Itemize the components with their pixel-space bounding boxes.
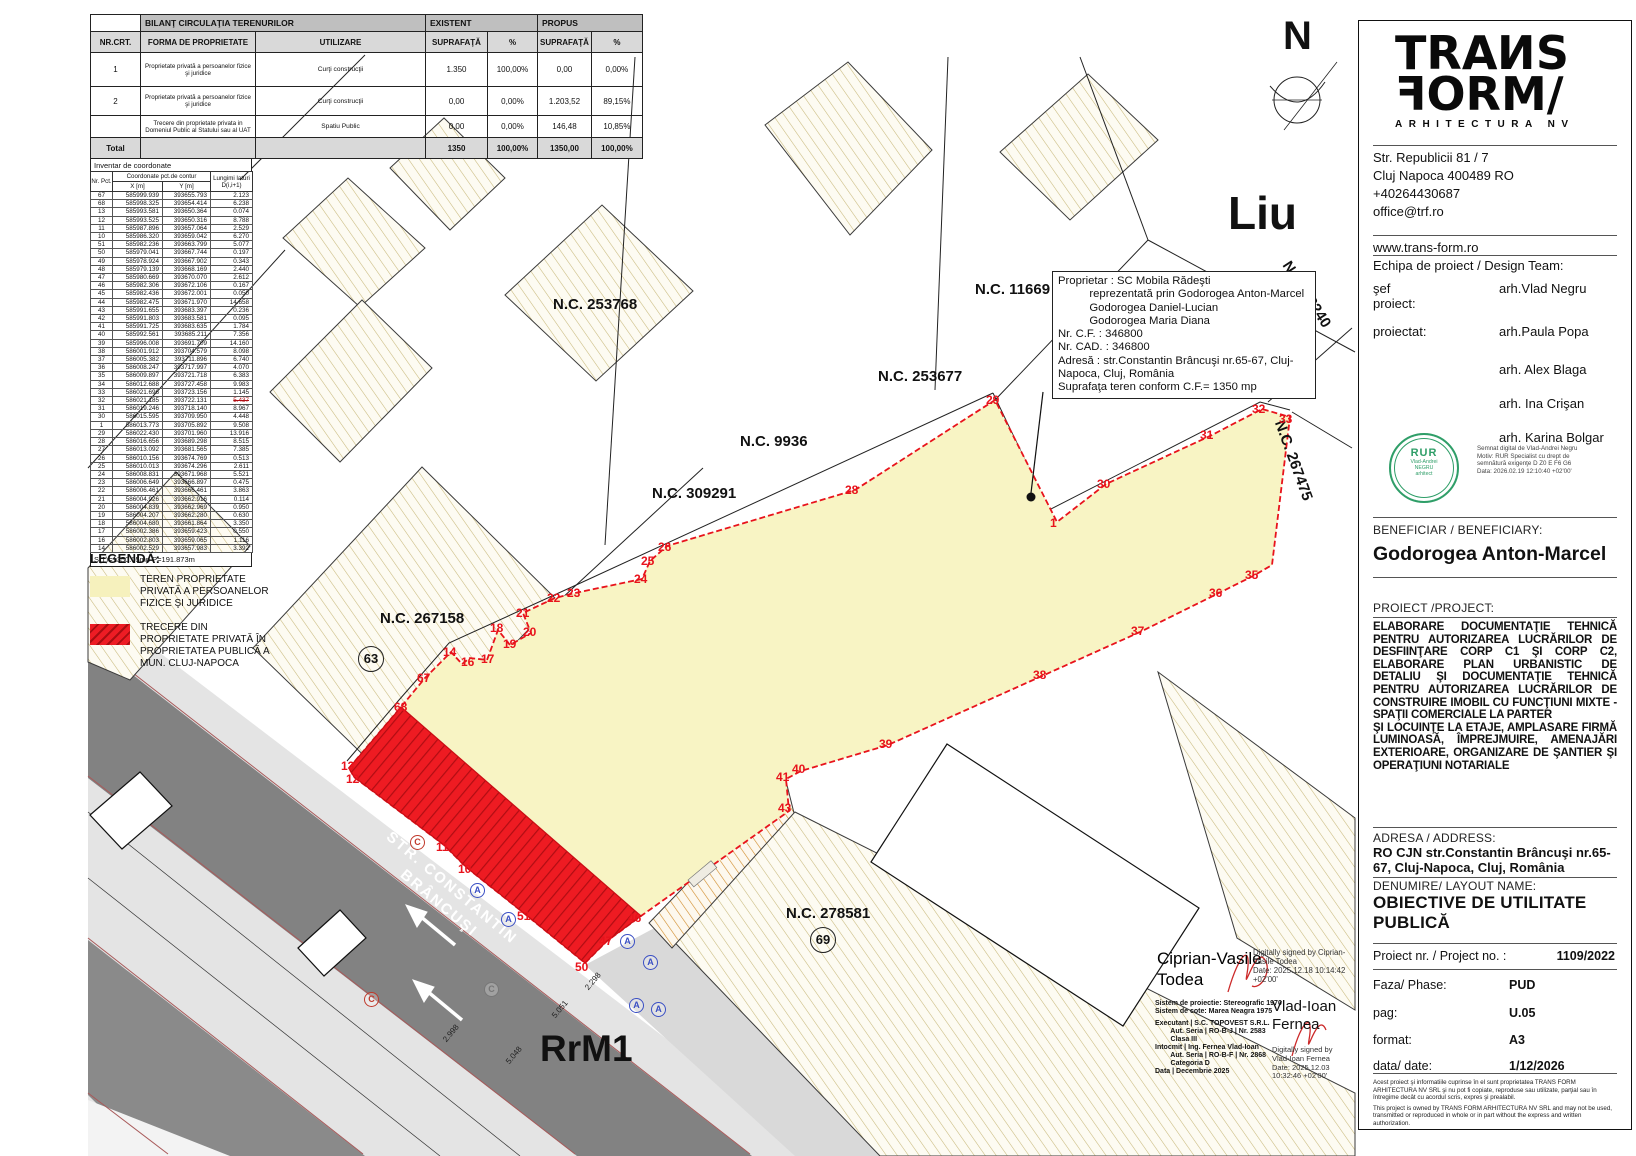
coord-cell: 393704.579 [163, 347, 211, 355]
design-team-label: Echipa de proiect / Design Team: [1373, 258, 1564, 273]
coord-cell: 393650.316 [163, 216, 211, 224]
text-line: This project is owned by TRANS FORM ARHI… [1373, 1105, 1617, 1128]
table-cell: Total [91, 138, 141, 159]
col-header: FORMA DE PROPRIETATE [141, 32, 256, 53]
coord-cell: 393661.864 [163, 520, 211, 528]
table-cell: 1 [91, 53, 141, 87]
text-line: Semnat digital de Vlad-Andrei Negru [1477, 445, 1622, 453]
coord-cell: 46 [91, 282, 113, 290]
field-row: Proiect nr. / Project no. :1109/2022 [1373, 949, 1617, 963]
coord-cell: 0.114 [211, 495, 253, 503]
coord-cell: 3.350 [211, 520, 253, 528]
stamp-small-text: Vlad-AndreiNEGRUarhitect [1391, 459, 1457, 477]
field-label: pag: [1373, 1006, 1397, 1020]
stamp-signature-note: Semnat digital de Vlad-Andrei NegruMotiv… [1477, 445, 1622, 475]
sheet: { "colors":{"accent_red":"#ed1c24","parc… [0, 0, 1636, 1156]
team-name: arh. Alex Blaga [1499, 362, 1586, 377]
coord-cell: 586004.926 [113, 495, 163, 503]
table-cell: 0,00 [426, 116, 488, 138]
coord-cell: 0.630 [211, 511, 253, 519]
coord-cell: 27 [91, 446, 113, 454]
coord-row: 36586008.247393717.9974.070 [91, 364, 253, 372]
coord-cell: 585979.041 [113, 249, 163, 257]
beneficiary-name: Godorogea Anton-Marcel [1373, 543, 1606, 566]
coord-cell: 43 [91, 306, 113, 314]
coord-cell: 585987.896 [113, 224, 163, 232]
coord-cell: 586013.773 [113, 421, 163, 429]
coord-row: 45585982.436393672.0010.050 [91, 290, 253, 298]
coord-cell: 586001.912 [113, 347, 163, 355]
coord-cell: 586002.803 [113, 536, 163, 544]
table-cell: 1350 [426, 138, 488, 159]
team-role: şef proiect: [1373, 281, 1416, 311]
coord-row: 46585982.306393672.1060.167 [91, 282, 253, 290]
coord-cell: 14.160 [211, 339, 253, 347]
coord-cell: 393662.969 [163, 503, 211, 511]
coord-cell: 20 [91, 503, 113, 511]
layout-name-value: OBIECTIVE DE UTILITATE PUBLICĂ [1373, 893, 1617, 933]
text-line: Data | Decembrie 2025 [1155, 1068, 1270, 1076]
field-value: 1109/2022 [1557, 949, 1615, 963]
coord-cell: 34 [91, 380, 113, 388]
coord-row: 18586004.680393661.8643.350 [91, 520, 253, 528]
logo-line2: FORM/ [1395, 74, 1575, 115]
text-line: Aut. Seria | RO-B-F | Nr. 2868 [1155, 1052, 1270, 1060]
coord-col-x: X [m] [113, 182, 163, 192]
coord-cell: 393674.296 [163, 462, 211, 470]
stamp-rur-text: RUR [1391, 447, 1457, 459]
coord-cell: 586008.831 [113, 470, 163, 478]
address-label: ADRESA / ADDRESS: [1373, 831, 1496, 845]
coord-cell: 585992.561 [113, 331, 163, 339]
coord-cell: 1.116 [211, 536, 253, 544]
coord-cell: 393674.769 [163, 454, 211, 462]
table-row: 1Proprietate privată a persoanelor fizic… [91, 53, 643, 87]
coord-cell: 35 [91, 372, 113, 380]
project-description: ELABORARE DOCUMENTAŢIE TEHNICĂ PENTRU AU… [1373, 621, 1617, 772]
table-cell: 100,00% [488, 138, 538, 159]
website-link[interactable]: www.trans-form.ro [1373, 240, 1478, 255]
coord-col-nr: Nr. Pct. [91, 172, 113, 192]
field-label: data/ date: [1373, 1059, 1432, 1073]
text-line: Proprietar : SC Mobila Rădeşti [1058, 275, 1310, 288]
coord-cell: 393721.718 [163, 372, 211, 380]
coord-cell: 41 [91, 323, 113, 331]
coord-cell: 5.437 [211, 397, 253, 405]
col-header: % [591, 32, 642, 53]
text-line: Categoria D [1155, 1060, 1270, 1068]
coord-cell: 0.050 [211, 290, 253, 298]
coord-cell: 585978.924 [113, 257, 163, 265]
coord-cell: 7.385 [211, 446, 253, 454]
coord-cell: 33 [91, 388, 113, 396]
coord-row: 68585998.325393654.4146.238 [91, 200, 253, 208]
coord-row: 42585991.803393683.5810.095 [91, 315, 253, 323]
coord-cell: 51 [91, 241, 113, 249]
col-header: SUPRAFAŢĂ [426, 32, 488, 53]
coord-cell: 30 [91, 413, 113, 421]
coordinate-inventory: Inventar de coordonate Nr. Pct. Coordona… [90, 158, 252, 567]
owner-info-box: Proprietar : SC Mobila Rădeşti reprezent… [1052, 271, 1316, 399]
coord-cell: 2.529 [211, 224, 253, 232]
coord-cell: 1 [91, 421, 113, 429]
coord-cell: 67 [91, 192, 113, 200]
coord-row: 38586001.912393704.5798.098 [91, 347, 253, 355]
table-cell [141, 138, 256, 159]
survey-systems: Sistem de proiectie: Stereografic 1970Si… [1155, 1000, 1282, 1016]
coord-row: 50585979.041393667.7440.197 [91, 249, 253, 257]
coord-cell: 585979.139 [113, 265, 163, 273]
table-cell: Proprietate privată a persoanelor fizice… [141, 53, 256, 87]
coord-cell: 586015.595 [113, 413, 163, 421]
text-line: Intocmit | Ing. Fernea Vlad-Ioan [1155, 1044, 1270, 1052]
contact-info: Str. Republicii 81 / 7Cluj Napoca 400489… [1373, 149, 1514, 221]
coord-row: 29586022.430393701.96013.916 [91, 429, 253, 437]
field-row: format:A3 [1373, 1033, 1617, 1047]
table-cell: 1350,00 [538, 138, 592, 159]
coord-cell: 16 [91, 536, 113, 544]
logo-letter: / [1547, 67, 1564, 121]
coord-row: 30586015.595393709.9504.448 [91, 413, 253, 421]
coord-cell: 586016.656 [113, 438, 163, 446]
table-cell [91, 116, 141, 138]
engineer-name: Vlad-IoanFernea [1272, 998, 1336, 1034]
table-row: Total1350100,00%1350,00100,00% [91, 138, 643, 159]
text-line: Motiv: RUR Specialist cu drept de [1477, 453, 1622, 461]
coord-cell: 44 [91, 298, 113, 306]
coord-cell: 68 [91, 200, 113, 208]
coord-cell: 586009.897 [113, 372, 163, 380]
coord-row: 33586021.696393723.1561.145 [91, 388, 253, 396]
coord-row: 28586016.656393689.2988.515 [91, 438, 253, 446]
table-cell: 1.203,52 [538, 87, 592, 116]
coord-cell: 50 [91, 249, 113, 257]
coord-cell: 586021.185 [113, 397, 163, 405]
field-row: Faza/ Phase:PUD [1373, 978, 1617, 992]
coord-cell: 393727.458 [163, 380, 211, 388]
coord-cell: 393659.423 [163, 528, 211, 536]
coord-cell: 19 [91, 511, 113, 519]
coord-cell: 28 [91, 438, 113, 446]
coord-row: 40585992.561393685.2117.356 [91, 331, 253, 339]
coord-row: 37586005.382393711.8966.740 [91, 356, 253, 364]
text-line: Sistem de proiectie: Stereografic 1970 [1155, 1000, 1282, 1008]
legend-item-label: TRECERE DIN PROPRIETATE PRIVATĂ ÎN PROPR… [140, 622, 270, 670]
coord-row: 13585993.581393650.3640.074 [91, 208, 253, 216]
project-paragraph: ŞI LOCUINŢE LA ETAJE, AMPLASARE FIRMĂ LU… [1373, 722, 1617, 772]
coord-cell: 2.612 [211, 274, 253, 282]
coord-cell: 393685.211 [163, 331, 211, 339]
coord-table-title: Inventar de coordonate [90, 158, 252, 171]
coord-cell: 586004.207 [113, 511, 163, 519]
coord-cell: 586006.461 [113, 487, 163, 495]
coord-cell: 585991.655 [113, 306, 163, 314]
coord-cell: 31 [91, 405, 113, 413]
coord-cell: 393668.169 [163, 265, 211, 273]
coord-row: 49585978.924393667.9020.343 [91, 257, 253, 265]
text-line: Clasa III [1155, 1036, 1270, 1044]
coord-cell: 585986.320 [113, 233, 163, 241]
coord-cell: 6.383 [211, 372, 253, 380]
surveyor-name: Ciprian-VasileTodea [1157, 948, 1262, 990]
coord-cell: 585993.581 [113, 208, 163, 216]
coord-cell: 393659.065 [163, 536, 211, 544]
text-line: +40264430687 [1373, 185, 1514, 203]
coord-cell: 37 [91, 356, 113, 364]
rur-stamp: RUR Vlad-AndreiNEGRUarhitect [1389, 433, 1459, 503]
coord-row: 35586009.897393721.7186.383 [91, 372, 253, 380]
coord-cell: 1.145 [211, 388, 253, 396]
text-line: arhitect [1391, 471, 1457, 477]
coord-cell: 13 [91, 208, 113, 216]
text-line: Str. Republicii 81 / 7 [1373, 149, 1514, 167]
coord-cell: 585982.436 [113, 290, 163, 298]
coord-cell: 586022.430 [113, 429, 163, 437]
coord-cell: 40 [91, 331, 113, 339]
coord-cell: 12 [91, 216, 113, 224]
coord-cell: 585998.325 [113, 200, 163, 208]
legend: LEGENDĂ: TEREN PROPRIETATE PRIVATĂ A PER… [90, 551, 270, 682]
team-name: arh.Vlad Negru [1499, 281, 1586, 296]
coord-cell: 0.513 [211, 454, 253, 462]
coord-cell: 0.074 [211, 208, 253, 216]
coord-row: 12585993.525393650.3168.788 [91, 216, 253, 224]
bilant-existent: EXISTENT [426, 15, 538, 32]
coord-cell: 42 [91, 315, 113, 323]
coord-cell: 7.356 [211, 331, 253, 339]
coord-cell: 585993.525 [113, 216, 163, 224]
coord-cell: 393655.793 [163, 192, 211, 200]
coord-cell: 393689.298 [163, 438, 211, 446]
coord-cell: 393705.892 [163, 421, 211, 429]
coord-row: 26586010.156393674.7690.513 [91, 454, 253, 462]
field-label: Faza/ Phase: [1373, 978, 1447, 992]
coord-row: 48585979.139393668.1692.440 [91, 265, 253, 273]
coord-cell: 11 [91, 224, 113, 232]
col-header: UTILIZARE [256, 32, 426, 53]
coord-cell: 393683.635 [163, 323, 211, 331]
coord-cell: 0.343 [211, 257, 253, 265]
coord-cell: 585980.669 [113, 274, 163, 282]
coord-cell: 0.095 [211, 315, 253, 323]
north-compass [1270, 62, 1337, 130]
coord-cell: 393672.106 [163, 282, 211, 290]
coord-cell: 585996.008 [113, 339, 163, 347]
legend-item-label: TEREN PROPRIETATE PRIVATĂ A PERSOANELOR … [140, 574, 270, 610]
table-cell: 2 [91, 87, 141, 116]
coord-cell: 4.070 [211, 364, 253, 372]
coord-cell: 2.440 [211, 265, 253, 273]
coord-row: 23586006.649393666.8970.475 [91, 479, 253, 487]
coord-cell: 393681.565 [163, 446, 211, 454]
coord-cell: 393662.916 [163, 495, 211, 503]
title-block: TRANS FORM/ ARHITECTURA NV Str. Republic… [1358, 20, 1632, 1130]
coord-cell: 586004.680 [113, 520, 163, 528]
table-cell: 146,48 [538, 116, 592, 138]
coord-cell: 0.197 [211, 249, 253, 257]
legend-item: TEREN PROPRIETATE PRIVATĂ A PERSOANELOR … [90, 574, 270, 610]
coord-cell: 393717.997 [163, 364, 211, 372]
table-row: 2Proprietate privată a persoanelor fizic… [91, 87, 643, 116]
coord-cell: 585982.306 [113, 282, 163, 290]
digital-signature-note: Digitally signed byVlad-Ioan FerneaDate:… [1272, 1046, 1332, 1081]
text-line: Ciprian-Vasile [1157, 948, 1262, 969]
project-label: PROIECT /PROJECT: [1373, 601, 1494, 615]
field-row: data/ date:1/12/2026 [1373, 1059, 1617, 1073]
coord-cell: 6.238 [211, 200, 253, 208]
coord-cell: 25 [91, 462, 113, 470]
legend-swatch-red-hatch [90, 624, 130, 645]
coord-cell: 586002.386 [113, 528, 163, 536]
table-cell: 0,00 [538, 53, 592, 87]
coord-cell: 48 [91, 265, 113, 273]
text-line: Godorogea Maria Diana [1058, 315, 1310, 328]
coord-row: 39585996.008393691.70914.160 [91, 339, 253, 347]
text-line: Executant | S.C. TOPOVEST S.R.L. [1155, 1020, 1270, 1028]
coord-cell: 8.788 [211, 216, 253, 224]
logo-letter: N [1497, 33, 1536, 74]
table-row: Trecere din proprietate privata in Domen… [91, 116, 643, 138]
text-line: Adresă : str.Constantin Brâncuşi nr.65-6… [1058, 355, 1310, 368]
table-cell: Trecere din proprietate privata in Domen… [141, 116, 256, 138]
table-cell: Spatiu Public [256, 116, 426, 138]
coord-cell: 22 [91, 487, 113, 495]
coord-cell: 6.740 [211, 356, 253, 364]
coord-cell: 23 [91, 479, 113, 487]
coord-cell: 586012.688 [113, 380, 163, 388]
text-line: Godorogea Daniel-Lucian [1058, 302, 1310, 315]
coord-cell: 393654.414 [163, 200, 211, 208]
coord-row: 43585991.655393683.3970.236 [91, 306, 253, 314]
coord-row: 16586002.803393659.0651.116 [91, 536, 253, 544]
coord-cell: 38 [91, 347, 113, 355]
coord-cell: 586008.247 [113, 364, 163, 372]
coord-cell: 0.950 [211, 503, 253, 511]
table-cell: 0,00% [488, 87, 538, 116]
coord-row: 31586019.246393718.1408.967 [91, 405, 253, 413]
coord-row: 24586008.831393671.9685.521 [91, 470, 253, 478]
table-cell: 100,00% [488, 53, 538, 87]
coord-cell: 393723.156 [163, 388, 211, 396]
coord-cell: 393670.070 [163, 274, 211, 282]
coord-col-coords: Coordonate pct.de contur [113, 172, 211, 182]
logo-letter: O [1426, 67, 1465, 121]
team-name: arh. Ina Crişan [1499, 396, 1584, 411]
coord-row: 67585999.939393655.7932.123 [91, 192, 253, 200]
coord-cell: 32 [91, 397, 113, 405]
coord-row: 10585986.320393659.0426.270 [91, 233, 253, 241]
coord-cell: 29 [91, 429, 113, 437]
table-cell: Curţi construcţii [256, 87, 426, 116]
coord-cell: 393650.364 [163, 208, 211, 216]
text-line: semnătură exigenţe D Z0 E F6 G6 [1477, 460, 1622, 468]
coord-cell: 585991.803 [113, 315, 163, 323]
coord-cell: 9.508 [211, 421, 253, 429]
coord-cell: 4.448 [211, 413, 253, 421]
table-cell: 0,00 [426, 87, 488, 116]
legend-title: LEGENDĂ: [90, 551, 270, 566]
coord-cell: 393659.042 [163, 233, 211, 241]
coord-cell: 26 [91, 454, 113, 462]
coord-row: 1586013.773393705.8929.508 [91, 421, 253, 429]
coord-cell: 393672.001 [163, 290, 211, 298]
coord-cell: 47 [91, 274, 113, 282]
text-line: Date: 2025.12.18 10:14:42 [1253, 966, 1345, 975]
logo-letter: R [1466, 67, 1501, 121]
coord-cell: 393663.799 [163, 241, 211, 249]
coord-cell: 393718.140 [163, 405, 211, 413]
text-line: Vlad-Ioan [1272, 998, 1336, 1016]
coord-cell: 393691.709 [163, 339, 211, 347]
table-cell: 100,00% [591, 138, 642, 159]
coord-cell: 9.983 [211, 380, 253, 388]
table-cell: 0,00% [488, 116, 538, 138]
digital-signature-note: Digitally signed by Ciprian-Vasile Todea… [1253, 948, 1345, 984]
coord-cell: 585982.236 [113, 241, 163, 249]
coord-cell: 8.098 [211, 347, 253, 355]
coord-cell: 586010.156 [113, 454, 163, 462]
coord-cell: 49 [91, 257, 113, 265]
bilant-title: BILANŢ CIRCULAŢIA TERENURILOR [141, 15, 426, 32]
text-line: Digitally signed by Ciprian- [1253, 948, 1345, 957]
coord-cell: 393701.960 [163, 429, 211, 437]
coord-cell: 393666.897 [163, 479, 211, 487]
text-line: office@trf.ro [1373, 203, 1514, 221]
coord-cell: 13.916 [211, 429, 253, 437]
coord-cell: 10 [91, 233, 113, 241]
project-paragraph: ELABORARE DOCUMENTAŢIE TEHNICĂ PENTRU AU… [1373, 621, 1617, 722]
text-line: Vasile Todea [1253, 957, 1345, 966]
coord-row: 19586004.207393662.2800.630 [91, 511, 253, 519]
coord-cell: 393709.950 [163, 413, 211, 421]
coord-row: 27586013.092393681.5657.385 [91, 446, 253, 454]
coord-row: 34586012.688393727.4589.983 [91, 380, 253, 388]
coord-cell: 8.515 [211, 438, 253, 446]
text-line: 10:32:46 +02'00' [1272, 1072, 1332, 1081]
coord-cell: 0.550 [211, 528, 253, 536]
coord-col-len: Lungimi laturi D(i,i+1) [211, 172, 253, 192]
coord-cell: 0.236 [211, 306, 253, 314]
text-line: Todea [1157, 969, 1262, 990]
text-line: Napoca, Cluj, România [1058, 368, 1310, 381]
text-line: Sistem de cote: Marea Neagra 1975 [1155, 1008, 1282, 1016]
text-line: Data: 2026.02.19 12:10:40 +02'00' [1477, 468, 1622, 476]
layout-name-label: DENUMIRE/ LAYOUT NAME: [1373, 879, 1536, 893]
team-role: proiectat: [1373, 324, 1426, 339]
table-cell: 0,00% [591, 53, 642, 87]
coord-cell: 586005.382 [113, 356, 163, 364]
text-line: Cluj Napoca 400489 RO [1373, 167, 1514, 185]
text-line: Acest proiect şi informatiile cuprinse î… [1373, 1079, 1617, 1102]
coord-cell: 585982.475 [113, 298, 163, 306]
text-line: Nr. C.F. : 346800 [1058, 328, 1310, 341]
text-line: Suprafaţa teren conform C.F.= 1350 mp [1058, 381, 1310, 394]
text-line: reprezentată prin Godorogea Anton-Marcel [1058, 288, 1310, 301]
coord-row: 32586021.185393722.1315.437 [91, 397, 253, 405]
legend-item: TRECERE DIN PROPRIETATE PRIVATĂ ÎN PROPR… [90, 622, 270, 670]
col-header: SUPRAFAŢĂ [538, 32, 592, 53]
bilant-propus: PROPUS [538, 15, 643, 32]
coord-cell: 393667.902 [163, 257, 211, 265]
coord-row: 20586004.839393662.9690.950 [91, 503, 253, 511]
coord-cell: 24 [91, 470, 113, 478]
coord-cell: 586013.092 [113, 446, 163, 454]
coord-cell: 393657.064 [163, 224, 211, 232]
field-label: format: [1373, 1033, 1412, 1047]
coord-cell: 393671.968 [163, 470, 211, 478]
logo: TRANS FORM/ ARHITECTURA NV [1395, 33, 1575, 130]
coord-cell: 1.784 [211, 323, 253, 331]
